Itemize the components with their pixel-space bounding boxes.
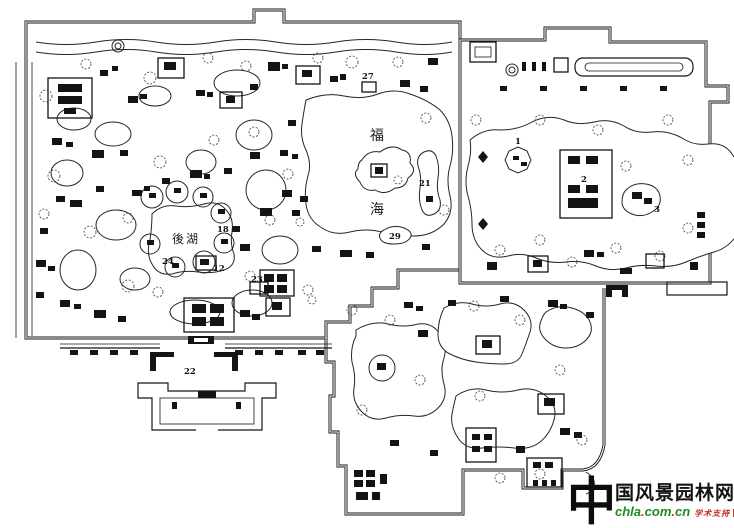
watermark-site-name: 国风景园林网 (615, 483, 734, 504)
main-palace-gate-complex (60, 336, 332, 432)
watermark-url: chla.com.cn学术支持 (615, 504, 734, 521)
site-number-21: 21 (419, 179, 431, 189)
url-part-cn: cn (675, 504, 690, 519)
url-part-chla: chla (615, 504, 641, 519)
fuhai-lake (302, 91, 453, 244)
qichunyuan-lakes (352, 303, 592, 449)
houhu-label: 後湖 (172, 231, 200, 246)
fuhai-label-top: 福 (370, 128, 384, 144)
site-number-1: 1 (515, 137, 521, 147)
site-number-29: 29 (389, 232, 401, 242)
site-number-18: 18 (217, 225, 229, 235)
small-ponds (51, 70, 298, 324)
north-canal (36, 40, 452, 55)
garden-plan-drawing: 福 海 後湖 27 21 29 18 24 12 23 22 1 2 3 (0, 0, 734, 528)
url-part-com: com (645, 504, 672, 519)
changchunyuan-lake (466, 117, 734, 269)
site-number-2: 2 (581, 175, 587, 185)
site-number-22: 22 (184, 367, 196, 377)
site-number-24: 24 (162, 257, 174, 267)
scanned-garden-map: 福 海 後湖 27 21 29 18 24 12 23 22 1 2 3 中 国… (0, 0, 734, 528)
watermark-logo-char: 中 (567, 476, 616, 528)
watermark-seal-script: 学术支持 (694, 509, 730, 518)
watermark: 中 国风景园林网 chla.com.cn学术支持 (567, 477, 734, 528)
site-number-27: 27 (362, 72, 374, 82)
site-number-12: 12 (213, 264, 225, 274)
site-number-23: 23 (251, 275, 263, 285)
fuhai-label-bottom: 海 (370, 202, 384, 218)
site-number-3: 3 (654, 205, 660, 215)
